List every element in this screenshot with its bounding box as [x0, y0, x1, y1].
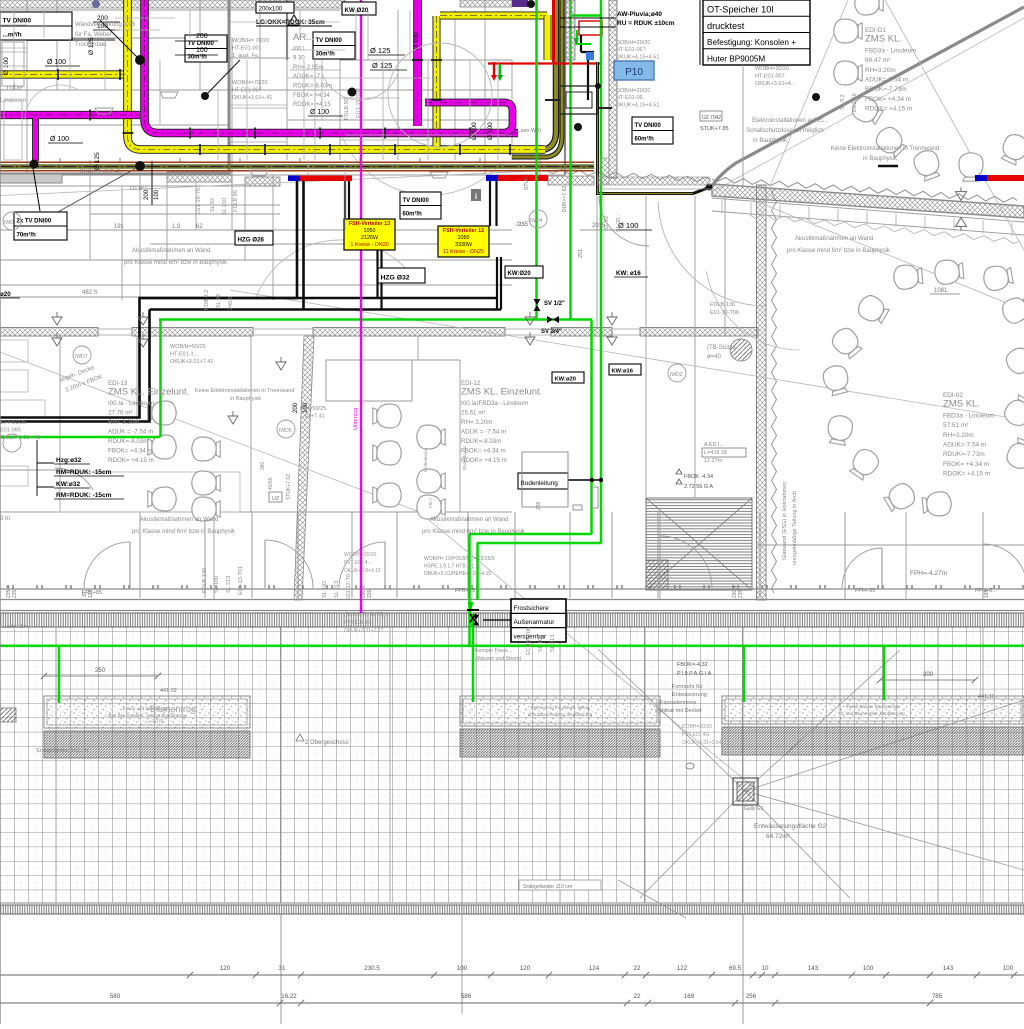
svg-text:P10: P10	[625, 67, 643, 78]
svg-text:≥-1976: ≥-1976	[148, 719, 164, 725]
svg-text:WOB/H= 10/POLB/HT= 15/25/9: WOB/H= 10/POLB/HT= 15/25/9	[424, 556, 495, 562]
svg-text:FPB+85: FPB+85	[82, 590, 102, 596]
svg-text:Unterzug: Unterzug	[353, 408, 359, 430]
svg-text:169: 169	[684, 993, 695, 1000]
svg-text:40/65: 40/65	[268, 477, 274, 490]
svg-text:KW:ø16: KW:ø16	[612, 368, 634, 374]
svg-text:SL 213: SL 213	[550, 635, 556, 652]
svg-text:1050: 1050	[458, 235, 470, 241]
svg-text:RDUK=-7.73m: RDUK=-7.73m	[865, 86, 907, 93]
svg-text:HSPE.1.9.1.7 HTB.1.1.11: HSPE.1.9.1.7 HTB.1.1.11	[424, 564, 481, 570]
svg-text:238: 238	[536, 501, 542, 510]
svg-text:785: 785	[932, 993, 943, 1000]
svg-text:FBOK= +4.34: FBOK= +4.34	[293, 93, 330, 99]
svg-text:FDB.9.2: FDB.9.2	[204, 290, 210, 310]
svg-text:Gully G1: Gully G1	[744, 806, 764, 812]
svg-text:HZG Ø26: HZG Ø26	[238, 237, 265, 244]
svg-text:12.27m: 12.27m	[704, 458, 723, 464]
svg-text:OT-Speicher 10l: OT-Speicher 10l	[707, 5, 773, 15]
svg-text:E01-19-T06: E01-19-T06	[710, 310, 739, 316]
svg-text:KW:ø32: KW:ø32	[56, 481, 80, 488]
svg-text:Befestigung: Konsolen +: Befestigung: Konsolen +	[707, 38, 796, 47]
svg-text:ECHB=T06: ECHB=T06	[526, 627, 532, 655]
svg-text:E01-065: E01-065	[0, 428, 21, 434]
svg-text:FBOK= +4.34 m: FBOK= +4.34 m	[108, 448, 153, 455]
svg-text:120: 120	[520, 965, 531, 972]
svg-text:Akustikmaßnahmen an Wand: Akustikmaßnahmen an Wand	[795, 236, 873, 242]
svg-text:FB0.I: FB0.I	[428, 498, 433, 508]
svg-text:Schallschutzdose an möglich: Schallschutzdose an möglich	[746, 128, 823, 134]
svg-text:pro Klasse mind 6m² bzw in: pro Klasse mind 6m² bzw in Bauphysik	[124, 260, 228, 266]
svg-text:Hzg:ø32: Hzg:ø32	[56, 457, 82, 464]
svg-text:KW:Ø20: KW:Ø20	[508, 271, 532, 277]
svg-text:AW-Pluvia;ø40: AW-Pluvia;ø40	[617, 11, 662, 18]
svg-text:441.11: 441.11	[978, 694, 994, 700]
svg-text:SV 3/4": SV 3/4"	[541, 329, 562, 335]
svg-text:ADUK = -7.54 m: ADUK = -7.54 m	[108, 429, 153, 436]
svg-text:Blumentrög mit einseit. Belag: Blumentrög mit einseit. Belag	[531, 705, 590, 710]
svg-text:2.72 56 G A: 2.72 56 G A	[684, 484, 713, 490]
svg-text:Wandverstärkung 0,96: Wandverstärkung 0,96	[75, 22, 136, 28]
svg-text:OKUK+3.31+3.77: OKUK+3.31+3.77	[344, 628, 384, 634]
svg-text:ADUK = -7.54 m: ADUK = -7.54 m	[461, 429, 506, 436]
svg-text:...01+7.41: ...01+7.41	[300, 414, 325, 420]
svg-text:STUK+7.62: STUK+7.62	[286, 474, 292, 500]
svg-text:RDOK= +4.15 m: RDOK= +4.15 m	[943, 471, 990, 478]
svg-text:Ø 100: Ø 100	[310, 109, 329, 116]
svg-text:191: 191	[114, 224, 125, 230]
svg-text:E01-12-T0...: E01-12-T0...	[346, 569, 352, 600]
svg-text:FSH-Verteiler 13: FSH-Verteiler 13	[349, 221, 390, 227]
svg-text:9 30: 9 30	[293, 56, 305, 62]
svg-text:IWD2: IWD2	[670, 372, 683, 378]
svg-text:22: 22	[634, 993, 641, 1000]
svg-text:FPB+35: FPB+35	[455, 588, 475, 594]
svg-text:235: 235	[738, 589, 744, 598]
svg-text:SL 92: SL 92	[210, 198, 216, 212]
svg-text:Akustikmaßnahmen an Wand: Akustikmaßnahmen an Wand	[430, 517, 508, 523]
svg-text:200: 200	[293, 402, 299, 413]
svg-text:FBOK= +4.34 m: FBOK= +4.34 m	[865, 96, 911, 103]
svg-text:WOB/H=70/20: WOB/H=70/20	[232, 80, 268, 86]
svg-text:9 m: 9 m	[0, 516, 10, 522]
svg-text:RDOK= +4.15: RDOK= +4.15	[293, 102, 331, 108]
svg-text:FPH=-4.27m: FPH=-4.27m	[910, 570, 947, 577]
svg-text:RDOK= +4.15 m: RDOK= +4.15 m	[865, 106, 912, 113]
svg-text:RH= 3.20m: RH= 3.20m	[461, 419, 492, 426]
svg-text:I00.I: I00.I	[293, 46, 305, 52]
svg-text:DUK=+7.62: DUK=+7.62	[562, 186, 568, 212]
svg-text:235: 235	[367, 589, 373, 598]
svg-text:256: 256	[746, 993, 757, 1000]
svg-text:Ø 100: Ø 100	[487, 122, 494, 140]
svg-text:...m³/h: ...m³/h	[3, 32, 22, 39]
svg-text:1 Kreise - DN20: 1 Kreise - DN20	[350, 242, 388, 248]
svg-text:RDUK=-7.73m: RDUK=-7.73m	[943, 451, 985, 458]
svg-text:100: 100	[154, 189, 160, 200]
svg-text:...robe: ...robe	[0, 83, 23, 92]
svg-text:Ø 100: Ø 100	[47, 59, 66, 66]
svg-text:STUK...: STUK...	[524, 172, 530, 190]
svg-text:SL 20...: SL 20...	[616, 213, 622, 232]
svg-text:SL 213: SL 213	[334, 581, 340, 598]
svg-text:SL 102: SL 102	[538, 635, 544, 652]
svg-text:OKUK+3.01+7.41: OKUK+3.01+7.41	[170, 359, 213, 365]
svg-text:B/H=50/25: B/H=50/25	[0, 420, 26, 426]
svg-text:IWD: IWD	[4, 220, 14, 226]
svg-text:RH=3.20m: RH=3.20m	[943, 432, 974, 439]
svg-text:2126W: 2126W	[361, 235, 379, 241]
svg-text:TV DNI00: TV DNI00	[316, 38, 343, 44]
svg-text:69.5: 69.5	[729, 965, 742, 972]
svg-text:OKUK+4.15+4.51: OKUK+4.15+4.51	[616, 54, 659, 60]
svg-text:240.5: 240.5	[228, 296, 234, 310]
svg-text:TV DNI00: TV DNI00	[3, 18, 32, 25]
svg-text:EU1-19: EU1-19	[852, 93, 858, 112]
svg-text:AR...: AR...	[293, 32, 314, 43]
svg-text:RDOK= +4.15 m: RDOK= +4.15 m	[461, 457, 507, 464]
svg-text:ADUK= -7...: ADUK= -7...	[293, 74, 326, 80]
svg-text:RU = RDUK ±10cm: RU = RDUK ±10cm	[617, 20, 675, 27]
svg-text:250: 250	[95, 668, 106, 674]
svg-text:Blumentrog: Blumentrog	[150, 704, 196, 714]
svg-text:über Blumenüberg. Bepflanzung: über Blumenüberg. Bepflanzung	[528, 712, 593, 717]
svg-text:31: 31	[279, 965, 286, 972]
svg-text:Frostsichere: Frostsichere	[514, 605, 550, 612]
svg-text:143: 143	[808, 965, 819, 972]
svg-text:Trockenbau: Trockenbau	[75, 42, 106, 48]
svg-text:69.47 m²: 69.47 m²	[865, 57, 890, 64]
svg-text:441.02: 441.02	[160, 688, 177, 694]
svg-text:SV 1/2": SV 1/2"	[544, 301, 565, 307]
svg-text:586: 586	[461, 993, 472, 1000]
svg-text:DBUK+5.01/HEHE+5.01+4.15: DBUK+5.01/HEHE+5.01+4.15	[424, 571, 491, 577]
svg-text:SL 9.2: SL 9.2	[840, 94, 846, 110]
svg-text:124: 124	[589, 965, 600, 972]
svg-text:SL 100: SL 100	[214, 576, 220, 593]
svg-text:WOB/H=50/25: WOB/H=50/25	[170, 344, 206, 350]
svg-text:100: 100	[1003, 965, 1014, 972]
svg-text:200: 200	[923, 672, 934, 678]
svg-text:RM=RDUK: -15cm: RM=RDUK: -15cm	[56, 492, 112, 499]
svg-text:Keine Elektroinstallationen in: Keine Elektroinstallationen in Trennwand	[195, 388, 294, 394]
svg-text:16.22: 16.22	[281, 993, 297, 1000]
svg-text:27.76 m²: 27.76 m²	[108, 410, 132, 417]
svg-text:IWD7: IWD7	[75, 354, 88, 360]
svg-text:E01-13-T01: E01-13-T01	[238, 566, 244, 595]
svg-text:DOB/H=20/20: DOB/H=20/20	[616, 88, 650, 94]
svg-text:64.72m²: 64.72m²	[766, 833, 791, 840]
svg-text:143: 143	[943, 965, 954, 972]
svg-text:OKUK+3.01+.41: OKUK+3.01+.41	[232, 95, 272, 101]
svg-text:PVT.E01.4.5: PVT.E01.4.5	[344, 620, 372, 626]
svg-text:60m³/h: 60m³/h	[403, 211, 423, 218]
svg-text:580: 580	[110, 993, 121, 1000]
svg-text:Bodenleitung: Bodenleitung	[521, 480, 559, 487]
svg-text:57.51 m²: 57.51 m²	[943, 422, 968, 429]
svg-text:Ø 100: Ø 100	[50, 136, 69, 143]
svg-text:ZMS KL. Einzelunt.: ZMS KL. Einzelunt.	[108, 387, 189, 398]
svg-text:pro Klasse mind 6m² bzw in: pro Klasse mind 6m² bzw in Bauphysik	[422, 529, 526, 535]
svg-text:(BAB/H(T)=29/25(II: (BAB/H(T)=29/25(II	[344, 612, 387, 618]
svg-text:FDLB-130: FDLB-130	[710, 302, 735, 308]
svg-text:I00.Ia(FBD3a - Linoleum: I00.Ia(FBD3a - Linoleum	[461, 400, 528, 407]
svg-text:TV DNI00: TV DNI00	[403, 198, 430, 204]
svg-text:3330W: 3330W	[455, 242, 473, 248]
svg-text:120: 120	[220, 965, 231, 972]
svg-text:KW: ø16: KW: ø16	[616, 270, 641, 277]
svg-text:DOBH=20/20: DOBH=20/20	[682, 724, 712, 730]
svg-text:ZMS KL.: ZMS KL.	[943, 399, 980, 410]
svg-text:100: 100	[863, 965, 874, 972]
svg-text:OKUK+3.31+3.54: OKUK+3.31+3.54	[682, 740, 722, 746]
svg-text:1050: 1050	[364, 228, 376, 234]
svg-text:FBOK=-4.32: FBOK=-4.32	[677, 662, 708, 668]
svg-text:OT.BI.I...: OT.BI.I...	[130, 186, 152, 192]
svg-text:A ED I...: A ED I...	[704, 442, 725, 448]
svg-text:PVT.E01.4...: PVT.E01.4...	[344, 560, 372, 566]
svg-text:...sen W3): ...sen W3)	[516, 128, 541, 134]
svg-text:FBD3a - Linoleum: FBD3a - Linoleum	[865, 47, 917, 54]
svg-text:Srabgeländer 110 cm: Srabgeländer 110 cm	[523, 884, 572, 890]
svg-text:drucktest: drucktest	[707, 21, 745, 31]
svg-text:Akustikmaßnahmen an Wand: Akustikmaßnahmen an Wand	[140, 517, 218, 523]
svg-text:482 S: 482 S	[82, 290, 98, 296]
svg-text:FBOK= +4.34 m: FBOK= +4.34 m	[461, 448, 506, 455]
svg-text:für Fa. Weber: für Fa. Weber	[75, 32, 112, 38]
svg-text:HT-E01-001: HT-E01-001	[232, 46, 262, 52]
svg-text:ADUK=-7.54 m: ADUK=-7.54 m	[865, 77, 908, 84]
svg-text:WOBH=20/20: WOBH=20/20	[755, 66, 789, 72]
svg-text:70m³/h: 70m³/h	[17, 232, 37, 239]
svg-text:HT-E01-1...: HT-E01-1...	[170, 352, 199, 358]
svg-text:235: 235	[12, 589, 18, 598]
svg-text:Ø 125: Ø 125	[94, 152, 101, 170]
svg-text:RDOK= +4.15 m: RDOK= +4.15 m	[108, 457, 154, 464]
svg-text:WOB/H= 70/20: WOB/H= 70/20	[232, 38, 269, 44]
svg-text:in Bauphysik: in Bauphysik	[753, 138, 788, 144]
svg-text:22: 22	[634, 965, 641, 972]
svg-text:pro Klasse mind 6m² bzw in: pro Klasse mind 6m² bzw in Bauphysik	[132, 529, 236, 535]
svg-text:62: 62	[196, 224, 203, 230]
svg-text:FSH-Verteiler 12: FSH-Verteiler 12	[443, 228, 484, 234]
svg-text:SL 213: SL 213	[226, 576, 232, 593]
svg-text:OKUK+3.61+4...: OKUK+3.61+4...	[755, 81, 796, 87]
svg-text:HT-E01-06.: HT-E01-06.	[616, 95, 645, 101]
svg-text:Glaswand (ESG) in Holzrahmen: Glaswand (ESG) in Holzrahmen	[782, 482, 788, 560]
svg-text:FBOK -4.34: FBOK -4.34	[684, 474, 713, 480]
svg-text:SL 92: SL 92	[604, 216, 610, 230]
svg-text:Kemper Frese...: Kemper Frese...	[475, 648, 512, 654]
svg-text:100: 100	[196, 47, 208, 54]
svg-text:KW Ø20: KW Ø20	[345, 7, 369, 14]
svg-text:25.61 m²: 25.61 m²	[461, 410, 485, 417]
svg-text:EU1-19-T0...: EU1-19-T0...	[196, 183, 202, 215]
svg-text:in Bauphysik: in Bauphysik	[863, 156, 898, 162]
svg-text:251: 251	[578, 249, 584, 258]
svg-text:ZMS KL. Einzelunt.: ZMS KL. Einzelunt.	[461, 387, 542, 398]
svg-text:FBD3a - Linoleum: FBD3a - Linoleum	[943, 412, 995, 419]
svg-text:Keine Elektroinstallationen in: Keine Elektroinstallationen in Trennwand	[831, 146, 939, 152]
svg-text:200: 200	[196, 33, 208, 40]
svg-text:PVT.E01.4G: PVT.E01.4G	[682, 732, 710, 738]
svg-text:FDLB.90: FDLB.90	[344, 98, 350, 120]
svg-text:FPH=35: FPH=35	[855, 588, 875, 594]
svg-text:STUK+7.85: STUK+7.85	[700, 126, 729, 132]
svg-text:380: 380	[260, 461, 266, 470]
svg-text:IWD4: IWD4	[530, 218, 543, 224]
svg-text:Entwässerungsfläche G2: Entwässerungsfläche G2	[754, 823, 827, 830]
svg-text:SL 92: SL 92	[216, 294, 222, 308]
svg-text:Kleine Bäume Blumentröge: Kleine Bäume Blumentröge	[846, 704, 901, 709]
svg-text:Formrohr für: Formrohr für	[672, 684, 703, 690]
svg-text:ø=40: ø=40	[707, 354, 722, 360]
svg-text:Akustikmaßnahmen an Wand: Akustikmaßnahmen an Wand	[132, 248, 210, 254]
svg-text:Entwässerung: Entwässerung	[672, 692, 707, 698]
svg-text:DOB/H=20/20: DOB/H=20/20	[616, 40, 650, 46]
svg-text:RH= 3.20m: RH= 3.20m	[108, 419, 139, 426]
svg-text:1. aust. Fa.: 1. aust. Fa.	[232, 53, 260, 59]
svg-text:200x100: 200x100	[259, 5, 283, 12]
svg-text:2 Obergeschoss: 2 Obergeschoss	[305, 740, 349, 746]
svg-text:1081: 1081	[934, 288, 948, 294]
svg-text:SL 102: SL 102	[322, 581, 328, 598]
svg-text:Bodenkanal: Bodenkanal	[462, 446, 467, 470]
svg-text:...ad+4.5m: ...ad+4.5m	[2, 624, 29, 630]
svg-text:OKUK+4.15+4.51: OKUK+4.15+4.51	[616, 102, 659, 108]
svg-text:i: i	[475, 192, 477, 201]
svg-text:RM=RDUK: -15cm: RM=RDUK: -15cm	[56, 469, 112, 476]
svg-text:HT-E01-06?: HT-E01-06?	[616, 47, 646, 53]
svg-text:ø20: ø20	[0, 291, 11, 298]
svg-text:11 Kreise - DN25: 11 Kreise - DN25	[443, 249, 484, 255]
svg-text:RH=3.20m: RH=3.20m	[865, 67, 896, 74]
svg-text:UZ 7042: UZ 7042	[702, 115, 721, 121]
svg-text:IWD5: IWD5	[279, 428, 292, 434]
svg-text:TV DNI00: TV DNI00	[635, 123, 662, 129]
svg-text:in Bauphysik: in Bauphysik	[230, 396, 261, 402]
svg-text:100: 100	[457, 965, 468, 972]
svg-text:ZMS KL.: ZMS KL.	[865, 34, 902, 45]
svg-text:unregelmäßige Teilung in Arch: unregelmäßige Teilung in Arch	[792, 491, 798, 565]
svg-text:FPH=8...: FPH=8...	[975, 588, 997, 594]
svg-text:ADUK=-7.54 m: ADUK=-7.54 m	[943, 442, 986, 449]
svg-text:Srabgeländer 110 cm: Srabgeländer 110 cm	[36, 748, 89, 754]
svg-text:B/H=50/25: B/H=50/25	[300, 406, 326, 412]
svg-text:RDUK=-8.03m: RDUK=-8.03m	[293, 84, 332, 90]
svg-text:sichtbar mit Deckel: sichtbar mit Deckel	[655, 708, 701, 714]
svg-text:30m³/h: 30m³/h	[316, 51, 336, 58]
svg-text:2x TV DNI00: 2x TV DNI00	[17, 219, 52, 225]
svg-text:Ø 125: Ø 125	[370, 46, 390, 55]
svg-text:1.9: 1.9	[172, 224, 181, 230]
svg-text:HT-E01-007: HT-E01-007	[755, 74, 785, 80]
svg-text:lt. und Blumenplan Bepflanzung: lt. und Blumenplan Bepflanzung	[841, 711, 905, 716]
svg-text:FBOK= +4.34 m: FBOK= +4.34 m	[943, 461, 989, 468]
svg-text:200: 200	[97, 15, 108, 22]
svg-text:FDLB-130: FDLB-130	[202, 568, 208, 593]
svg-text:230.5: 230.5	[364, 965, 380, 972]
svg-text:Ø 125: Ø 125	[372, 61, 392, 70]
svg-text:Außenarmatur: Außenarmatur	[514, 619, 556, 626]
svg-text:SL 210: SL 210	[222, 198, 228, 215]
svg-text:Elektroinstallationen auf El..: Elektroinstallationen auf El...	[752, 118, 828, 124]
svg-text:(Wasser und Strom): (Wasser und Strom)	[475, 656, 521, 662]
svg-text:UZ: UZ	[272, 496, 280, 502]
svg-text:EU1-19-T02: EU1-19-T02	[356, 88, 362, 118]
svg-text:RDUK=-8.03m: RDUK=-8.03m	[461, 438, 501, 445]
svg-text:Huter BP9005M: Huter BP9005M	[707, 54, 765, 63]
svg-text:HZG Ø32: HZG Ø32	[381, 274, 410, 281]
svg-text:I00.Ia - Linoleum: I00.Ia - Linoleum	[108, 400, 154, 407]
svg-text:L=418 28: L=418 28	[704, 450, 727, 456]
svg-text:FDLB 90: FDLB 90	[233, 190, 239, 212]
svg-text:Fassadenrinne: Fassadenrinne	[660, 700, 696, 706]
svg-text:DKUK+7.61/2.41: DKUK+7.61/2.41	[80, 169, 121, 175]
svg-text:215: 215	[516, 222, 525, 228]
svg-text:10: 10	[762, 965, 769, 972]
svg-text:pro Klasse mind 6m² bzw in: pro Klasse mind 6m² bzw in Bauphysik	[787, 248, 891, 254]
svg-text:KW:ø20: KW:ø20	[555, 376, 576, 382]
svg-text:122: 122	[677, 965, 688, 972]
svg-text:P.I.9 P.A.G.I.A: P.I.9 P.A.G.I.A	[677, 671, 712, 677]
svg-text:Bodenkanal: Bodenkanal	[423, 448, 428, 472]
svg-text:60m³/h: 60m³/h	[635, 136, 655, 143]
svg-text:RDUK=-8.03m: RDUK=-8.03m	[108, 438, 148, 445]
